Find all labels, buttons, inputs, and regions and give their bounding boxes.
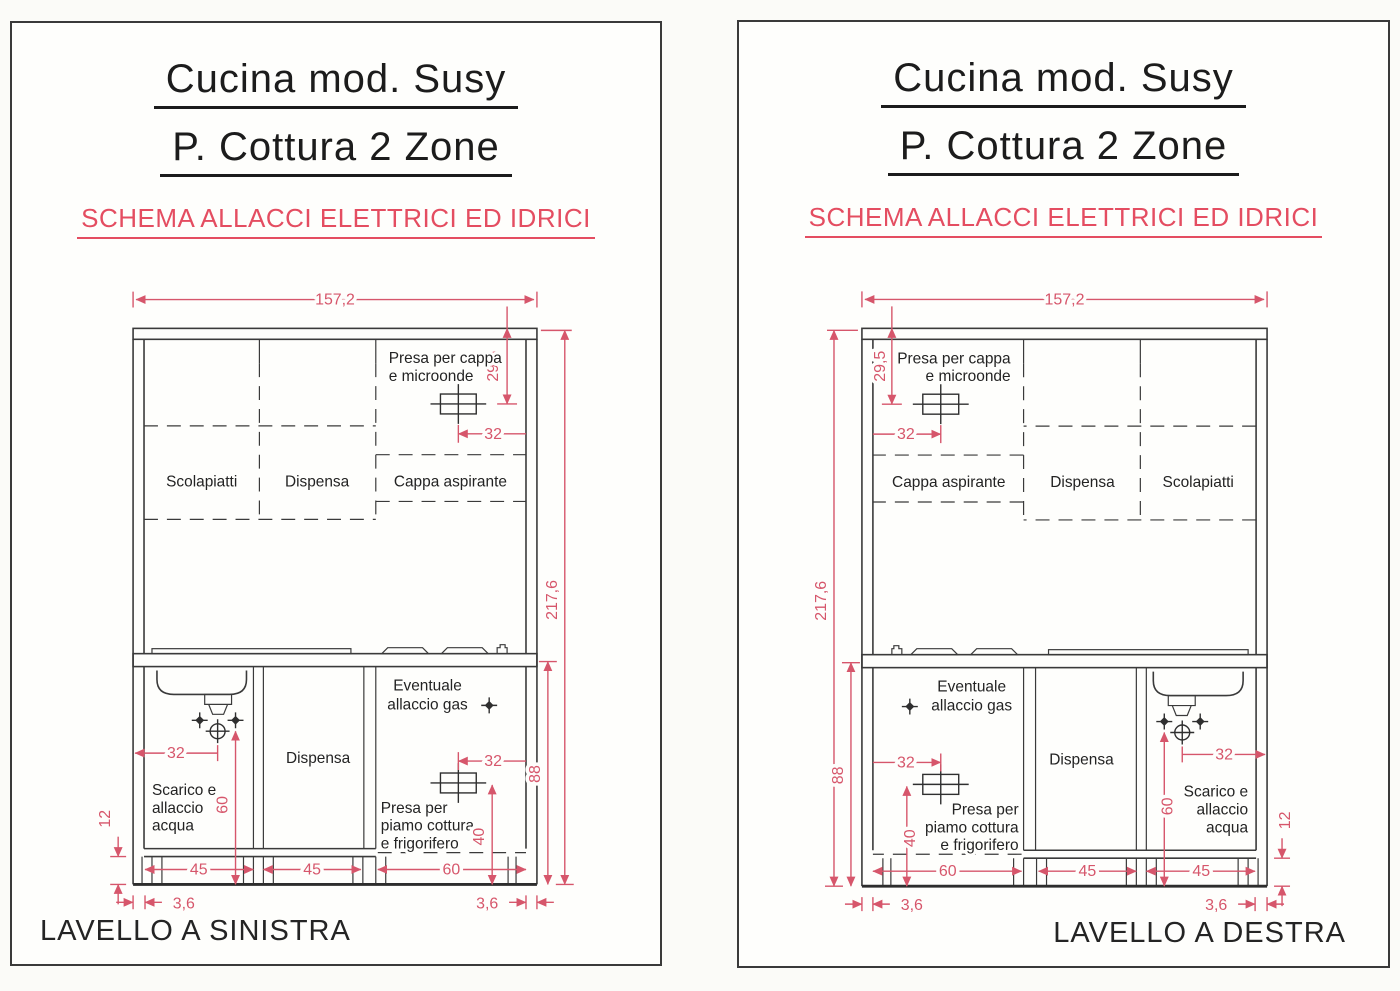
label-scarico-2: allaccio <box>152 800 203 817</box>
label-dispensa-top: Dispensa <box>285 474 350 491</box>
dim-total-height: 217,6 <box>544 580 561 620</box>
left-panel-text-overlay: 157,2 29,5 32 Presa per cappa e microond… <box>97 292 561 913</box>
dim-recess-right: 3,6 <box>476 895 498 912</box>
footer-sink-position: LAVELLO A SINISTRA <box>40 915 351 948</box>
label-eventuale-gas-1: Eventuale <box>937 679 1006 696</box>
page-title-model: Cucina mod. Susy <box>154 57 519 109</box>
dim-base-height: 88 <box>830 766 847 784</box>
dim-hood-socket-drop: 29,5 <box>872 351 889 382</box>
label-presa-cottura-2: piamo cottura <box>925 819 1019 836</box>
page-subtitle-schema: SCHEMA ALLACCI ELETTRICI ED IDRICI <box>77 203 595 239</box>
label-presa-cottura-1: Presa per <box>952 801 1019 818</box>
dim-plinth-height: 12 <box>1277 811 1294 829</box>
dim-drain-height: 60 <box>215 796 232 814</box>
label-dispensa-bottom: Dispensa <box>286 750 351 767</box>
page-title-type: P. Cottura 2 Zone <box>160 125 512 177</box>
dim-sink-drain-offset: 32 <box>167 745 185 762</box>
page-title-model: Cucina mod. Susy <box>881 56 1246 108</box>
dim-unit3-width: 60 <box>443 861 461 878</box>
dim-recess-left: 3,6 <box>173 895 195 912</box>
dim-recess-left: 3,6 <box>901 897 923 914</box>
dim-hood-socket-offset: 32 <box>897 426 915 443</box>
label-scolapiatti: Scolapiatti <box>166 474 237 491</box>
dim-unit3-width: 45 <box>1192 863 1210 880</box>
dim-unit1-width: 45 <box>190 861 208 878</box>
label-presa-cottura-1: Presa per <box>381 800 448 817</box>
label-cappa-aspirante: Cappa aspirante <box>394 474 507 491</box>
dim-total-width: 157,2 <box>1045 291 1085 308</box>
label-eventuale-gas-2: allaccio gas <box>387 696 468 713</box>
dim-unit2-width: 45 <box>1079 863 1097 880</box>
label-scarico-1: Scarico e <box>152 782 216 799</box>
dim-unit2-width: 45 <box>303 861 321 878</box>
page-lavello-destra: Cucina mod. Susy P. Cottura 2 Zone SCHEM… <box>737 20 1390 968</box>
label-scarico-2: allaccio <box>1197 801 1249 818</box>
title-block: Cucina mod. Susy P. Cottura 2 Zone SCHEM… <box>739 56 1388 238</box>
label-scarico-3: acqua <box>152 818 194 835</box>
dim-unit1-width: 60 <box>939 863 957 880</box>
page-subtitle-schema: SCHEMA ALLACCI ELETTRICI ED IDRICI <box>805 202 1323 238</box>
page-title-type: P. Cottura 2 Zone <box>888 124 1240 176</box>
title-block: Cucina mod. Susy P. Cottura 2 Zone SCHEM… <box>12 57 660 239</box>
dim-plinth-height: 12 <box>97 810 114 828</box>
label-presa-cappa-1: Presa per cappa <box>389 350 502 367</box>
dim-total-height: 217,6 <box>813 581 830 621</box>
dim-drain-height: 60 <box>1159 797 1176 815</box>
label-eventuale-gas-2: allaccio gas <box>931 698 1012 715</box>
dim-cooktop-socket-height: 40 <box>471 828 488 846</box>
dim-sink-drain-offset: 32 <box>1215 746 1233 763</box>
label-presa-cappa-2: e microonde <box>389 368 474 385</box>
dim-cooktop-socket-height: 40 <box>902 829 919 847</box>
page-lavello-sinistra: Cucina mod. Susy P. Cottura 2 Zone SCHEM… <box>10 21 662 966</box>
right-panel-text-overlay: 157,2 29,5 32 Presa per cappa e microond… <box>813 291 1294 914</box>
label-presa-cappa-2: e microonde <box>926 368 1011 385</box>
label-presa-cottura-3: e frigorifero <box>940 837 1018 854</box>
label-presa-cottura-2: piamo cottura <box>381 818 475 835</box>
label-eventuale-gas-1: Eventuale <box>393 677 462 694</box>
dim-base-height: 88 <box>527 765 544 783</box>
label-cappa-aspirante: Cappa aspirante <box>892 474 1005 491</box>
dim-recess-right: 3,6 <box>1205 897 1227 914</box>
dim-hood-socket-offset: 32 <box>484 426 502 443</box>
dim-cooktop-socket-offset: 32 <box>897 754 915 771</box>
scanned-sheet: Cucina mod. Susy P. Cottura 2 Zone SCHEM… <box>0 0 1400 991</box>
dim-cooktop-socket-offset: 32 <box>484 753 502 770</box>
label-dispensa-top: Dispensa <box>1050 474 1115 491</box>
label-scarico-1: Scarico e <box>1184 783 1248 800</box>
dim-total-width: 157,2 <box>315 292 355 309</box>
label-dispensa-bottom: Dispensa <box>1049 751 1114 768</box>
label-scolapiatti: Scolapiatti <box>1163 474 1234 491</box>
footer-sink-position: LAVELLO A DESTRA <box>1053 917 1346 950</box>
label-presa-cottura-3: e frigorifero <box>381 836 459 853</box>
label-presa-cappa-1: Presa per cappa <box>897 350 1011 367</box>
label-scarico-3: acqua <box>1206 819 1249 836</box>
